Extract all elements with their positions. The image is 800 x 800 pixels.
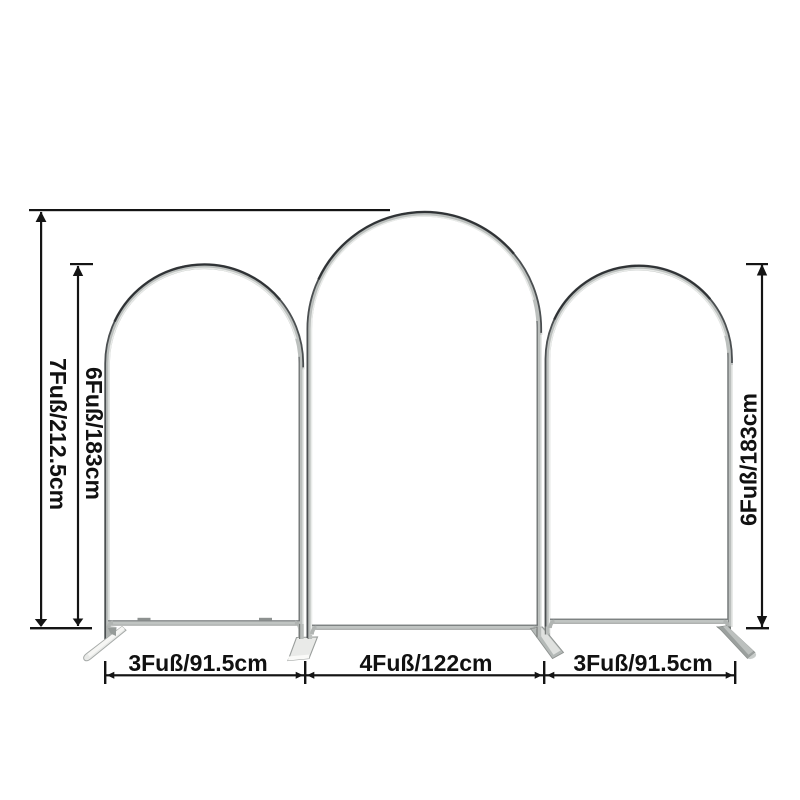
svg-text:6Fuß/183cm: 6Fuß/183cm xyxy=(736,393,762,526)
svg-text:4Fuß/122cm: 4Fuß/122cm xyxy=(360,650,493,676)
svg-text:3Fuß/91.5cm: 3Fuß/91.5cm xyxy=(128,650,267,676)
svg-text:6Fuß/183cm: 6Fuß/183cm xyxy=(81,367,107,500)
svg-text:7Fuß/212.5cm: 7Fuß/212.5cm xyxy=(45,358,71,510)
svg-text:3Fuß/91.5cm: 3Fuß/91.5cm xyxy=(573,650,712,676)
